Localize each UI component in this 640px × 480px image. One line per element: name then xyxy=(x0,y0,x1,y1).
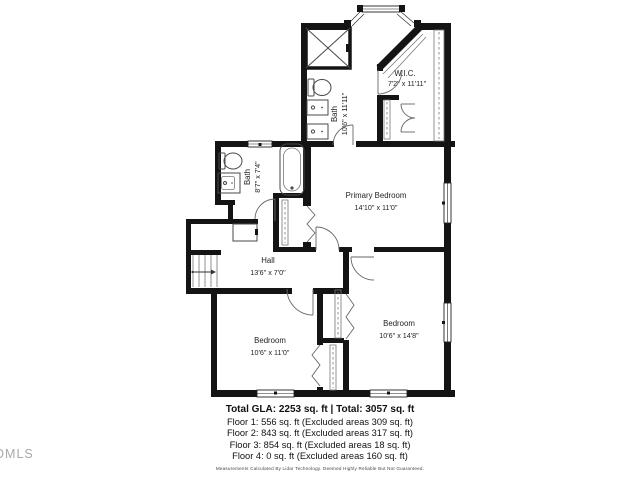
watermark-logo: DMLS xyxy=(0,447,34,461)
double-vanity-icon xyxy=(307,100,328,139)
room-dims-primary-bedroom: 14'10" x 11'0" xyxy=(355,203,398,212)
shower-icon xyxy=(306,28,351,68)
room-label-wic: W.I.C. xyxy=(394,69,415,78)
room-label-primary-bedroom: Primary Bedroom xyxy=(346,191,407,200)
disclaimer-text: Measurements Calculated By Lidar Technol… xyxy=(0,466,640,471)
room-dims-wic: 7'2" x 11'11" xyxy=(388,79,427,88)
toilet-upper-icon xyxy=(308,79,331,96)
floor3-line: Floor 3: 854 sq. ft (Excluded areas 18 s… xyxy=(0,440,640,451)
hall-closet xyxy=(233,224,258,241)
room-dims-hall: 13'6" x 7'0" xyxy=(250,268,286,277)
toilet-main-icon xyxy=(219,153,242,169)
staircase xyxy=(191,255,217,287)
room-label-hall: Hall xyxy=(261,256,275,265)
bay-window xyxy=(344,5,421,27)
floor1-line: Floor 1: 556 sq. ft (Excluded areas 309 … xyxy=(0,417,640,428)
total-gla-line: Total GLA: 2253 sq. ft | Total: 3057 sq.… xyxy=(0,404,640,415)
bathtub-icon xyxy=(280,144,304,195)
area-summary: Total GLA: 2253 sq. ft | Total: 3057 sq.… xyxy=(0,404,640,471)
floor4-line: Floor 4: 0 sq. ft (Excluded areas 160 sq… xyxy=(0,451,640,462)
room-dims-bedroom-left: 10'6" x 11'0" xyxy=(251,348,290,357)
room-dims-bedroom-right: 10'6" x 14'8" xyxy=(379,331,419,340)
room-dims-bath-upper: 10'6" x 11'11" xyxy=(340,92,349,135)
room-label-bath-main: Bath xyxy=(243,169,252,185)
room-label-bedroom-left: Bedroom xyxy=(254,336,286,345)
room-label-bedroom-right: Bedroom xyxy=(383,319,415,328)
room-dims-bath-main: 8'7" x 7'4" xyxy=(253,161,262,193)
floor2-line: Floor 2: 843 sq. ft (Excluded areas 317 … xyxy=(0,428,640,439)
room-label-bath-upper: Bath xyxy=(330,106,339,122)
vanity-main-icon xyxy=(218,173,240,193)
floor-plan-page: Bath 10'6" x 11'11" W.I.C. 7'2" x 11'11"… xyxy=(0,0,640,480)
